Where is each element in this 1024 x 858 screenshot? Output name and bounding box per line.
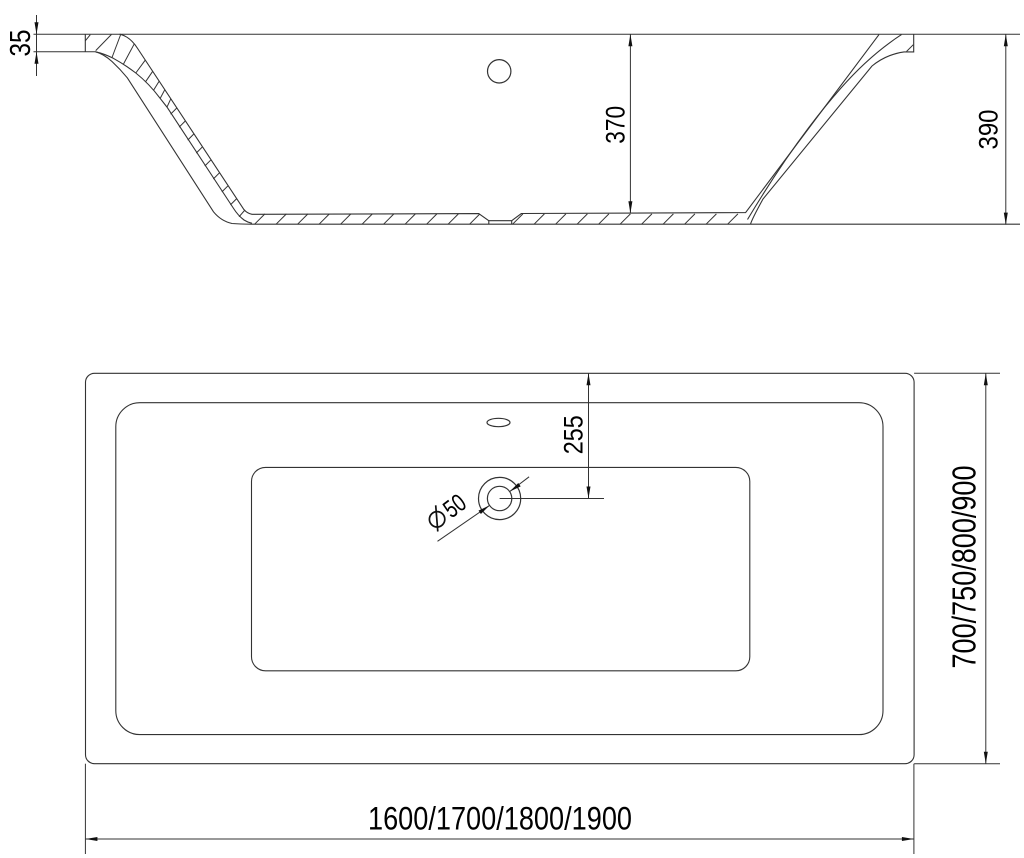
svg-text:50: 50 (438, 489, 472, 524)
svg-text:1600/1700/1800/1900: 1600/1700/1800/1900 (368, 801, 632, 837)
svg-text:700/750/800/900: 700/750/800/900 (946, 466, 983, 669)
svg-text:390: 390 (973, 110, 1003, 150)
svg-text:370: 370 (600, 106, 630, 144)
svg-text:35: 35 (5, 30, 37, 57)
svg-text:255: 255 (558, 415, 588, 454)
